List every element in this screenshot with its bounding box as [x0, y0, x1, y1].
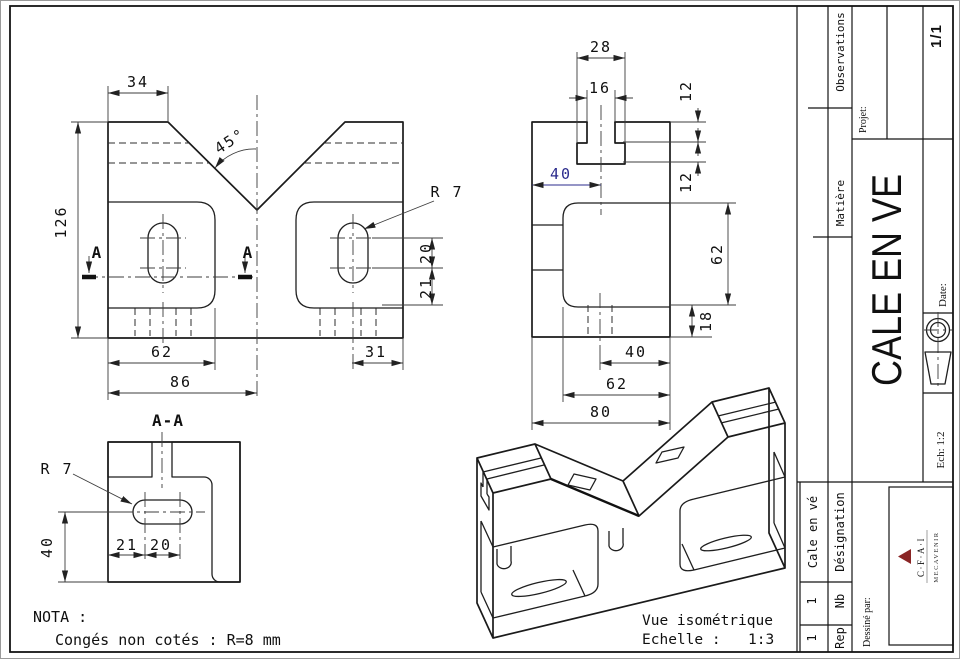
- nb-value: 1: [805, 597, 819, 604]
- iso-caption: Vue isométrique: [642, 613, 773, 629]
- dim-40-bottom: 40: [625, 343, 647, 361]
- dim-12-bottom: 12: [677, 171, 695, 193]
- scale-label: Ech: 1:2: [935, 432, 947, 469]
- projet-label: Projet:: [858, 106, 869, 133]
- iso-scale-value: 1:3: [748, 632, 774, 648]
- dim-20: 20: [417, 242, 435, 264]
- section-title: A-A: [152, 411, 184, 430]
- logo-line1: C·F·A·I: [916, 537, 926, 577]
- nota-label: NOTA :: [33, 608, 87, 626]
- dim-28: 28: [590, 38, 612, 56]
- drawn-by-label: Dessiné par:: [862, 597, 873, 647]
- dim-40-blue: 40: [550, 165, 572, 183]
- page-number: 1/1: [928, 24, 945, 48]
- dim-18: 18: [697, 310, 715, 332]
- observations-label: Observations: [834, 12, 847, 91]
- designation-label: Désignation: [833, 492, 847, 571]
- dim-80: 80: [590, 403, 612, 421]
- section-letter-right: A: [243, 243, 254, 262]
- drawing-canvas: A A 34 45° 126 R 7 20 21 62 86 31: [0, 0, 960, 659]
- dim-62-bottom: 62: [606, 375, 628, 393]
- section-dim-20: 20: [150, 536, 172, 554]
- nota-text: Congés non cotés : R=8 mm: [55, 631, 281, 649]
- dim-21: 21: [417, 277, 435, 299]
- matiere-label: Matière: [834, 180, 847, 226]
- section-dim-40: 40: [38, 536, 56, 558]
- radius-label: R 7: [430, 183, 463, 201]
- drawing-sheet: A A 34 45° 126 R 7 20 21 62 86 31: [0, 0, 960, 659]
- dim-34: 34: [127, 73, 149, 91]
- dim-16: 16: [589, 79, 611, 97]
- date-label: Date:: [937, 283, 949, 307]
- designation-value: Cale en vé: [806, 496, 820, 568]
- dim-31: 31: [365, 343, 387, 361]
- section-letter-left: A: [92, 243, 103, 262]
- dim-126: 126: [52, 205, 70, 238]
- section-dim-21: 21: [116, 536, 138, 554]
- nb-label: Nb: [833, 594, 847, 608]
- dim-86: 86: [170, 373, 192, 391]
- rep-label: Rep: [833, 627, 847, 649]
- dim-62-right: 62: [708, 243, 726, 265]
- logo-line2: MECAVENIR: [933, 531, 940, 582]
- dim-62: 62: [151, 343, 173, 361]
- dim-12-top: 12: [677, 80, 695, 102]
- part-title: CALE EN VE: [863, 174, 910, 386]
- iso-scale-label: Echelle :: [642, 632, 721, 648]
- section-radius: R 7: [40, 460, 73, 478]
- rep-value: 1: [805, 634, 819, 641]
